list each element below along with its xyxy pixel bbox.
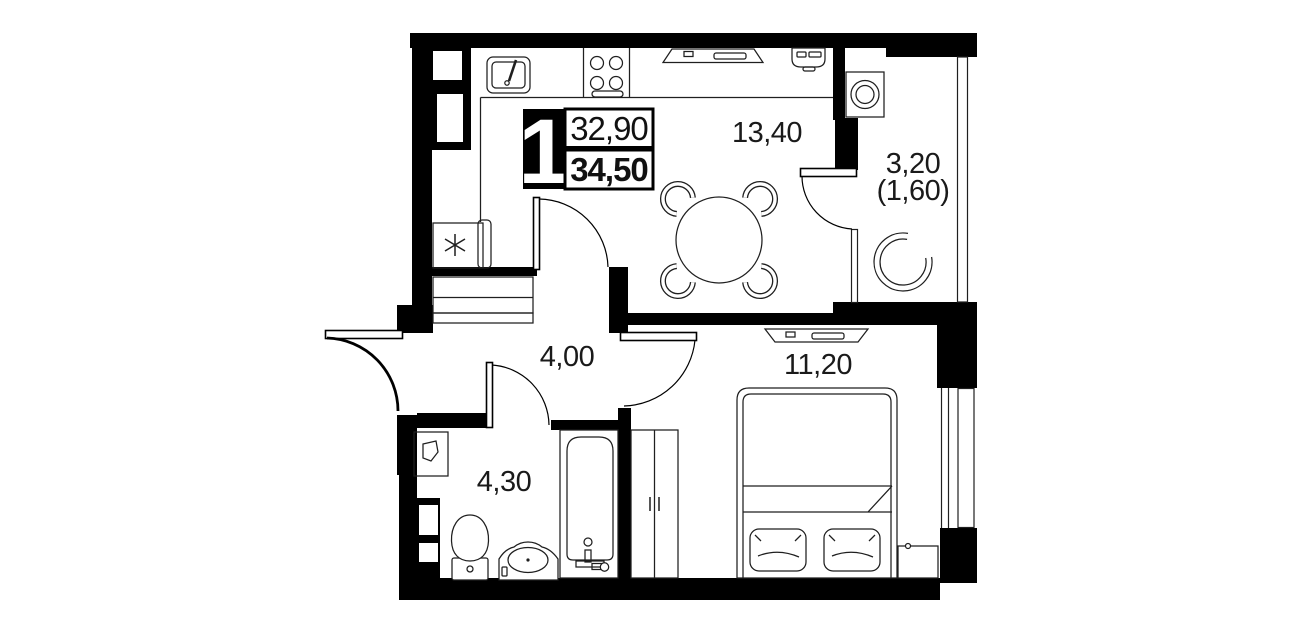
wardrobe-icon (631, 430, 678, 578)
bedroom-door-swing (624, 340, 695, 406)
kitchen-sink-icon (487, 57, 530, 93)
mirror-box-icon (414, 432, 448, 476)
wall-bathroom-top-left (417, 413, 488, 428)
balcony-door-swing (802, 176, 852, 229)
label-hallway: 4,00 (540, 341, 594, 373)
balcony-side-glazing (958, 57, 968, 302)
kitchen-door (534, 198, 609, 270)
wall-top (410, 33, 886, 48)
vent-niche (437, 94, 463, 142)
entrance-door-leaf (326, 331, 403, 339)
bathroom (414, 430, 618, 580)
vent-niche (419, 505, 438, 535)
kitchen-counter-icon (478, 220, 491, 268)
balcony-partition-glazing (852, 230, 858, 303)
label-kitchen-living: 13,40 (732, 117, 802, 149)
floor-plan: 1 32,90 34,50 13,40 3,20 (1,60) 4,00 11,… (0, 0, 1301, 630)
wall-balcony-partition-mid (835, 118, 858, 170)
vent-niche (419, 543, 438, 562)
bedroom-door (621, 333, 697, 407)
kitchen-door-swing (539, 199, 608, 267)
entrance-door (326, 331, 403, 412)
label-bathroom: 4,30 (477, 466, 531, 498)
balcony-door (801, 169, 857, 230)
area-badge: 1 32,90 34,50 (518, 101, 653, 203)
label-bedroom: 11,20 (784, 349, 852, 381)
round-armchair-icon (874, 233, 932, 291)
nightstand-icon (898, 544, 938, 579)
bathroom-door-leaf (487, 363, 493, 428)
wall-left-upper (412, 33, 432, 305)
table-top (676, 197, 762, 283)
bedroom-tv-icon (765, 329, 868, 342)
entrance-door-swing (327, 338, 398, 411)
wall-bottom (399, 578, 940, 600)
wall-entrance-post-upper (397, 305, 433, 333)
badge-rooms-count: 1 (518, 101, 569, 203)
wall-right-upper-post (937, 302, 977, 388)
dining-table-icon (663, 184, 775, 296)
washbasin-icon (499, 542, 558, 580)
fridge-icon (433, 223, 483, 268)
label-balcony-secondary: (1,60) (877, 175, 950, 207)
wall-top-right (886, 33, 977, 57)
ac-unit-icon (792, 48, 825, 71)
wall-bathroom-right (618, 408, 631, 600)
badge-living-area: 32,90 (570, 110, 648, 147)
bedroom-door-leaf (621, 333, 697, 341)
wall-right-lower-post (940, 528, 977, 583)
stove-icon (584, 48, 630, 97)
wall-bedroom-top (628, 313, 833, 325)
vent-niche (433, 51, 462, 80)
bedroom-window-outer (958, 389, 974, 528)
hallway-cabinet-icon (433, 277, 533, 323)
bathroom-door-swing (492, 365, 549, 425)
washing-machine-icon (846, 72, 884, 117)
toilet-icon (451, 515, 488, 580)
balcony-door-leaf (801, 169, 857, 177)
wall-post-kitchen-door (609, 267, 628, 333)
badge-total-area: 34,50 (570, 151, 648, 188)
bed-icon (737, 388, 897, 578)
wall-tv-icon (663, 49, 763, 63)
bathtub-icon (560, 430, 618, 578)
kitchen-door-leaf (534, 198, 540, 270)
wall-balcony-partition-upper (833, 48, 845, 120)
wall-bathroom-top-right (551, 420, 618, 430)
